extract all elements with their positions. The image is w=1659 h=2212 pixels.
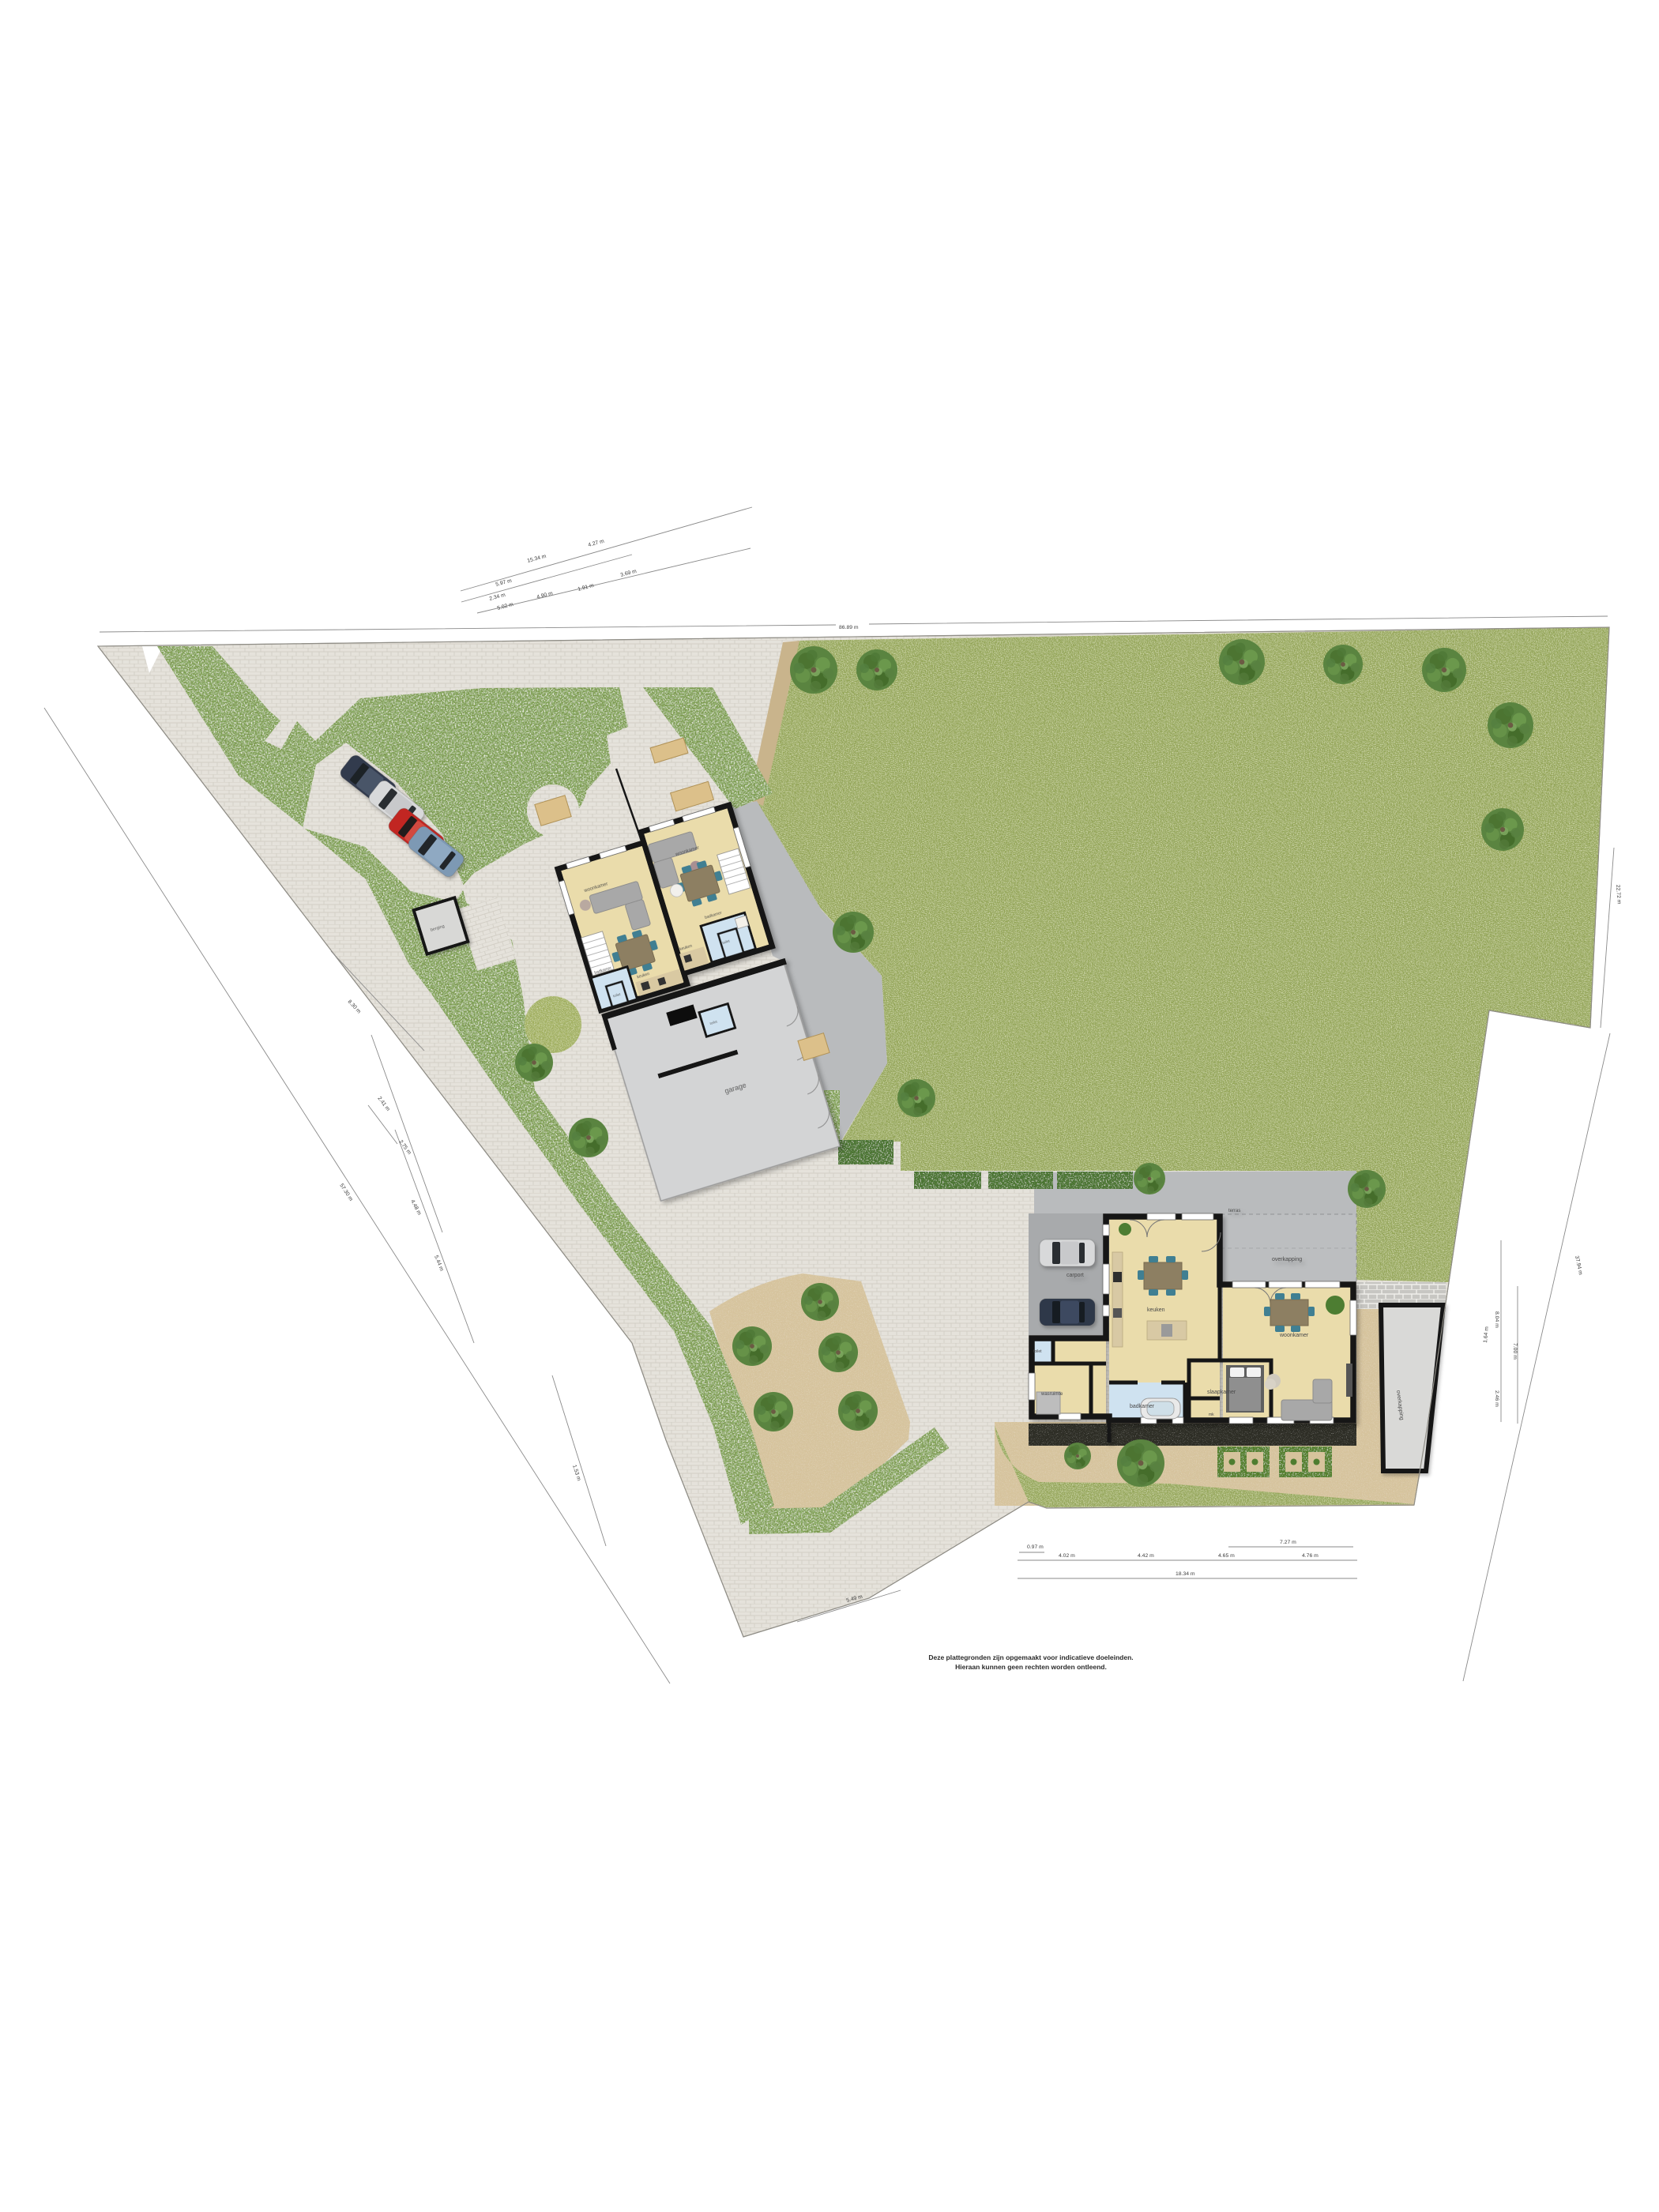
svg-text:overkapping: overkapping	[1272, 1257, 1302, 1262]
svg-text:7.00 m: 7.00 m	[1512, 1343, 1518, 1360]
svg-text:7.27 m: 7.27 m	[1280, 1540, 1296, 1545]
svg-text:terras: terras	[1228, 1209, 1240, 1213]
svg-text:4.65 m: 4.65 m	[1218, 1553, 1235, 1559]
svg-text:4.02 m: 4.02 m	[1059, 1553, 1075, 1559]
svg-text:0.97 m: 0.97 m	[1027, 1544, 1044, 1550]
svg-text:badkamer: badkamer	[1130, 1404, 1155, 1409]
svg-text:Deze plattegronden zijn opgema: Deze plattegronden zijn opgemaakt voor i…	[928, 1653, 1133, 1661]
svg-text:slaapkamer: slaapkamer	[1207, 1390, 1236, 1395]
svg-text:wasruimte: wasruimte	[1040, 1392, 1063, 1397]
svg-text:Hieraan kunnen geen rechten wo: Hieraan kunnen geen rechten worden ontle…	[955, 1663, 1107, 1671]
svg-text:mk: mk	[1209, 1413, 1214, 1417]
svg-text:8.04 m: 8.04 m	[1494, 1311, 1499, 1328]
svg-text:woonkamer: woonkamer	[1279, 1333, 1309, 1338]
svg-text:2.46 m: 2.46 m	[1494, 1390, 1499, 1407]
svg-text:keuken: keuken	[1147, 1307, 1165, 1313]
svg-text:18.34 m: 18.34 m	[1176, 1571, 1195, 1577]
svg-text:4.76 m: 4.76 m	[1302, 1553, 1319, 1559]
svg-text:86.89 m: 86.89 m	[839, 625, 859, 630]
svg-text:carport: carport	[1066, 1273, 1084, 1278]
svg-text:toilet: toilet	[1033, 1349, 1042, 1354]
svg-text:4.42 m: 4.42 m	[1138, 1553, 1154, 1559]
